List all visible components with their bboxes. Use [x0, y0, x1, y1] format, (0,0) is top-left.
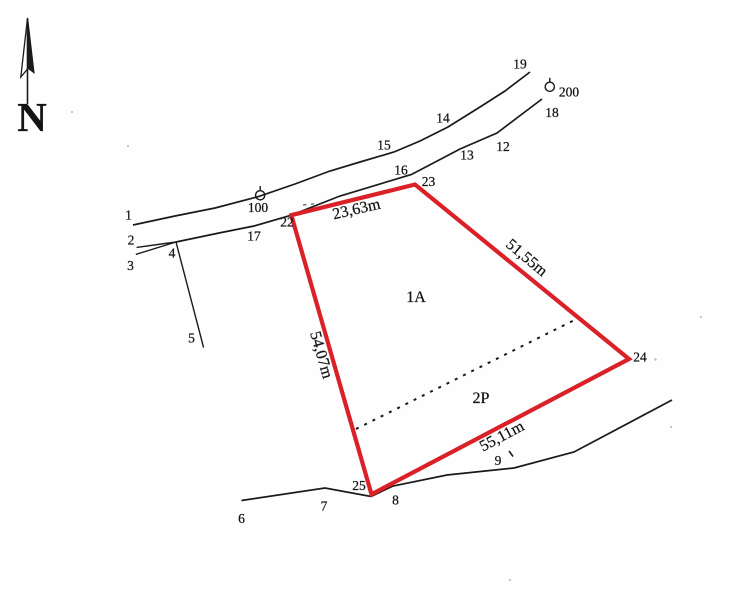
svg-text:3: 3	[127, 258, 134, 273]
svg-text:18: 18	[545, 105, 559, 120]
svg-text:22: 22	[280, 215, 294, 230]
svg-text:16: 16	[394, 163, 408, 178]
svg-text:1A: 1A	[406, 289, 426, 306]
svg-text:24: 24	[633, 350, 647, 365]
svg-text:2: 2	[128, 233, 135, 248]
svg-text:14: 14	[436, 111, 450, 126]
svg-text:4: 4	[169, 246, 176, 261]
svg-text:17: 17	[247, 229, 261, 244]
svg-text:12: 12	[496, 139, 510, 154]
svg-text:2P: 2P	[473, 390, 490, 407]
svg-text:23,63m: 23,63m	[331, 196, 383, 224]
svg-text:7: 7	[321, 499, 328, 514]
svg-text:9: 9	[495, 453, 502, 468]
svg-text:200: 200	[559, 85, 580, 100]
svg-text:13: 13	[460, 148, 474, 163]
svg-text:19: 19	[513, 57, 527, 72]
svg-text:5: 5	[188, 331, 195, 346]
svg-text:8: 8	[392, 493, 399, 508]
svg-text:1: 1	[125, 208, 132, 223]
svg-text:N: N	[17, 94, 47, 140]
svg-text:55,11m: 55,11m	[477, 418, 528, 456]
svg-text:15: 15	[377, 138, 391, 153]
svg-text:23: 23	[422, 174, 436, 189]
svg-text:6: 6	[238, 511, 245, 526]
svg-text:100: 100	[248, 200, 269, 215]
svg-text:25: 25	[352, 478, 366, 493]
